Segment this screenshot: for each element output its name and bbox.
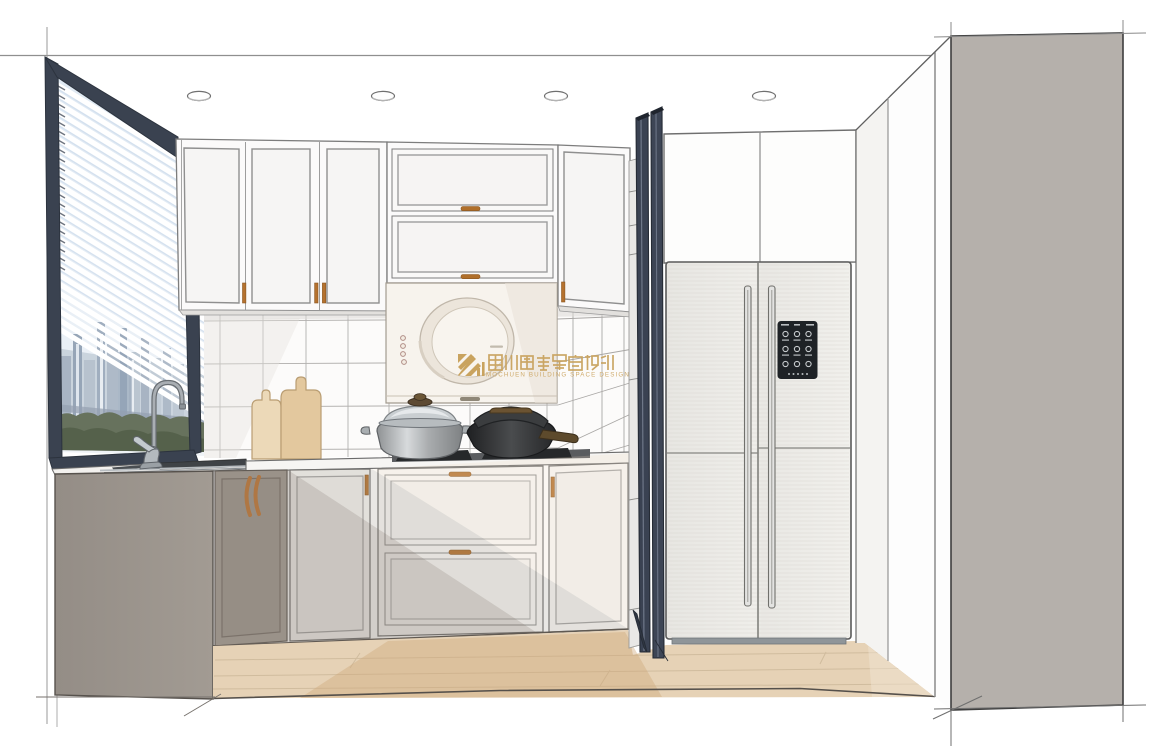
svg-text:MOCHUEN BUILDING SPACE DESIGN: MOCHUEN BUILDING SPACE DESIGN <box>486 372 630 379</box>
